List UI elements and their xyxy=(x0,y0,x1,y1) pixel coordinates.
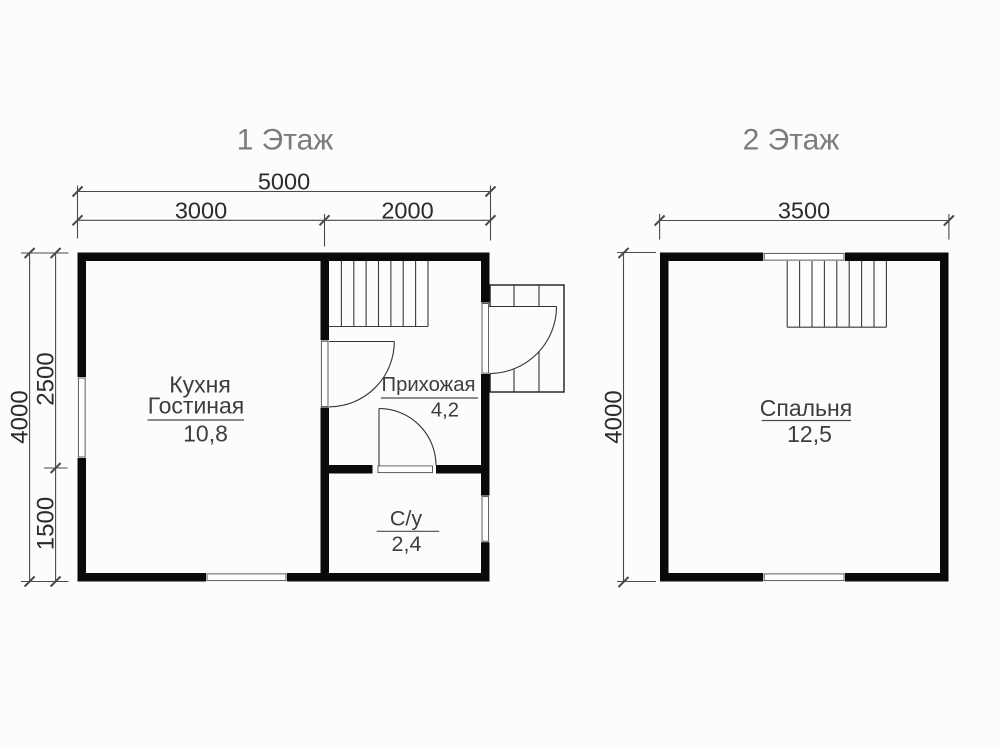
svg-text:1500: 1500 xyxy=(32,497,59,550)
svg-text:3500: 3500 xyxy=(778,198,830,224)
svg-text:2000: 2000 xyxy=(381,198,433,224)
svg-text:4,2: 4,2 xyxy=(431,399,459,421)
svg-text:2 Этаж: 2 Этаж xyxy=(743,124,840,157)
svg-text:Прихожая: Прихожая xyxy=(382,374,476,396)
svg-text:С/у: С/у xyxy=(390,507,423,531)
svg-text:12,5: 12,5 xyxy=(787,421,832,447)
svg-text:Гостиная: Гостиная xyxy=(148,392,245,418)
svg-text:3000: 3000 xyxy=(175,198,227,224)
svg-text:4000: 4000 xyxy=(601,390,628,443)
svg-text:4000: 4000 xyxy=(7,390,34,443)
svg-text:2,4: 2,4 xyxy=(392,532,422,556)
svg-text:2500: 2500 xyxy=(32,352,59,405)
svg-text:Спальня: Спальня xyxy=(760,395,852,421)
svg-text:10,8: 10,8 xyxy=(183,421,228,447)
svg-text:1 Этаж: 1 Этаж xyxy=(237,124,334,157)
svg-text:5000: 5000 xyxy=(258,169,310,195)
